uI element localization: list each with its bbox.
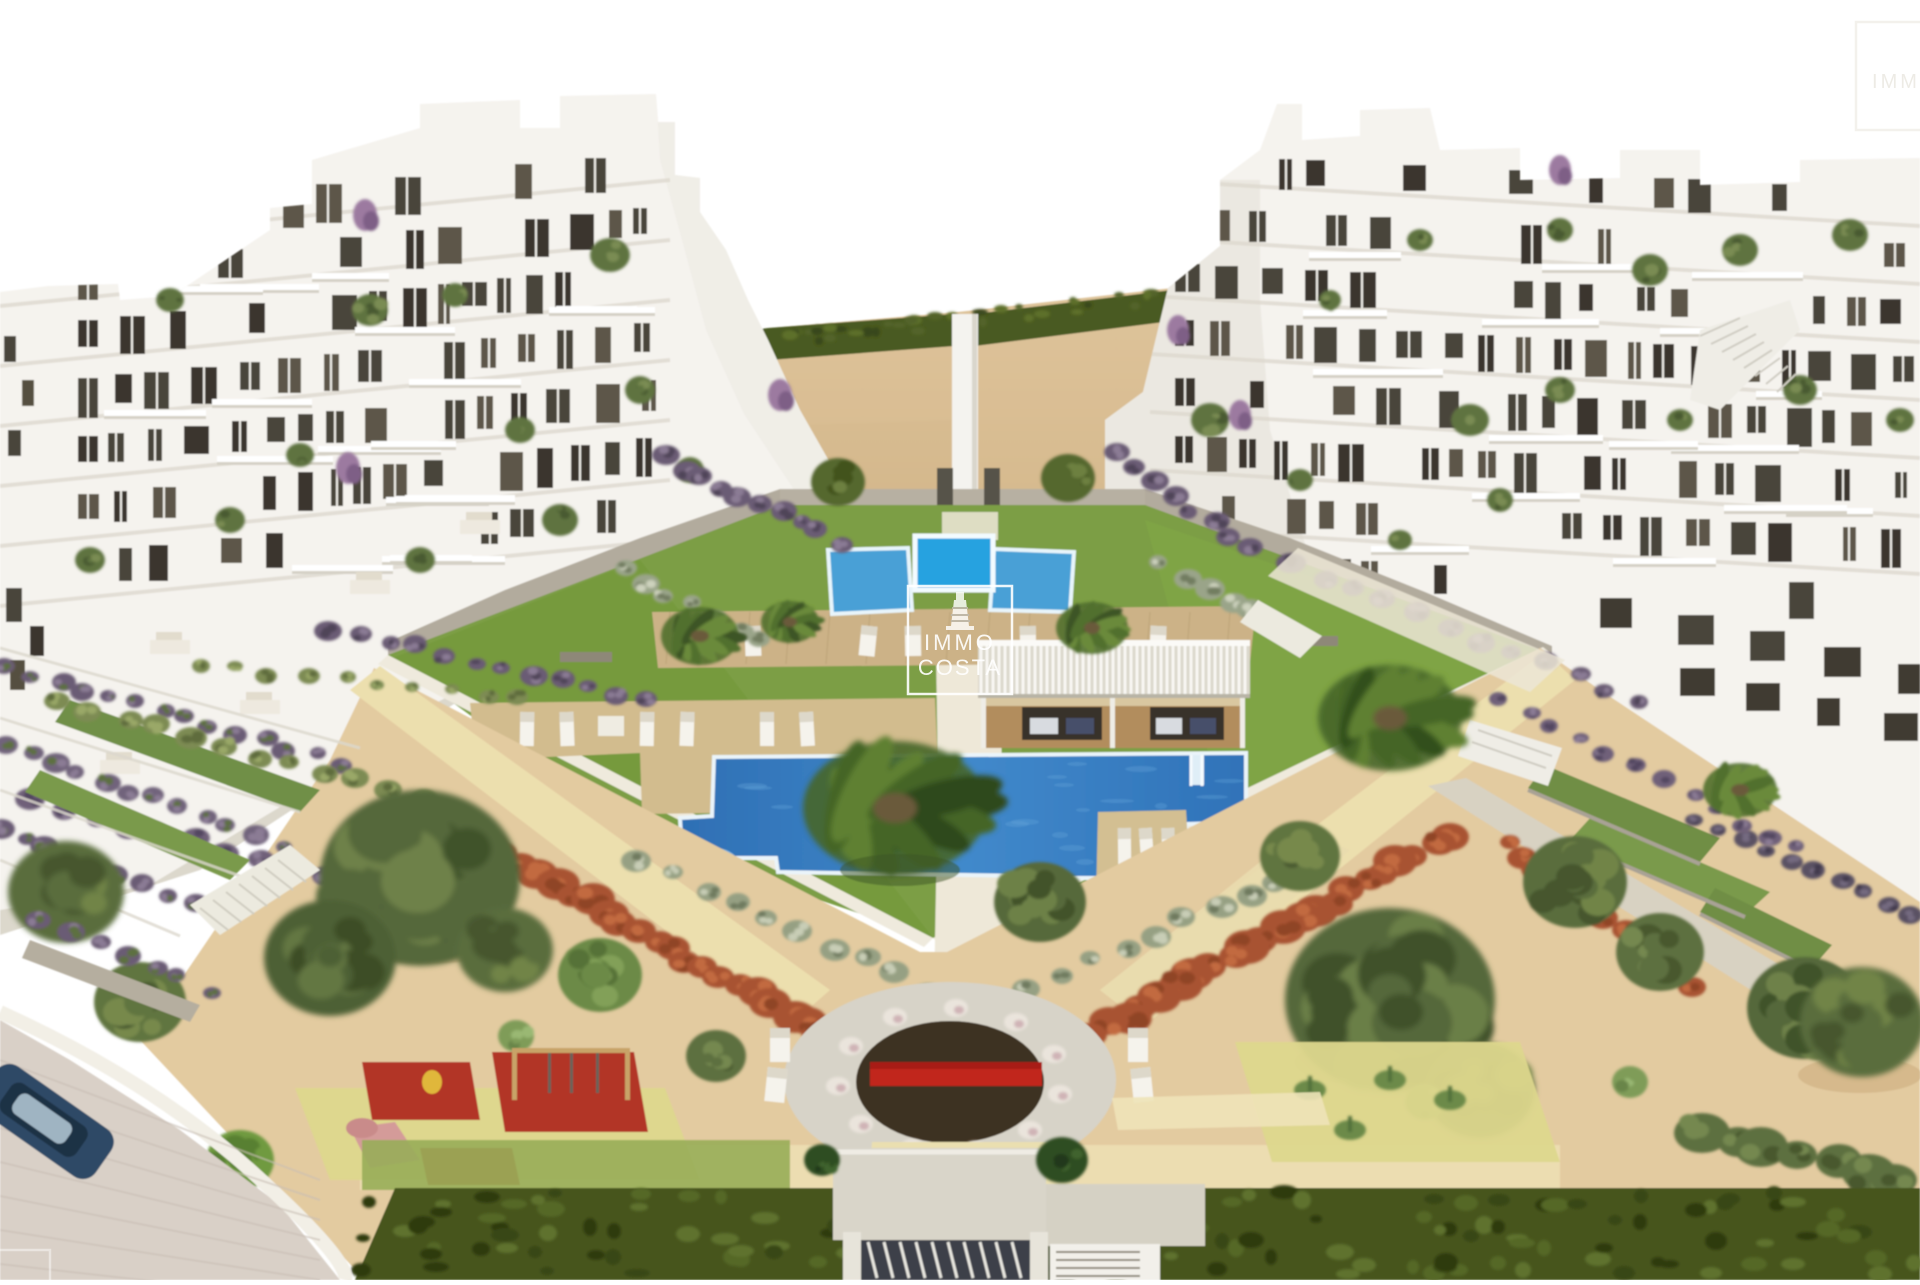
svg-text:COSTA: COSTA [918,655,1002,680]
svg-text:IMM: IMM [1872,71,1920,93]
svg-text:IMMO: IMMO [924,630,996,655]
